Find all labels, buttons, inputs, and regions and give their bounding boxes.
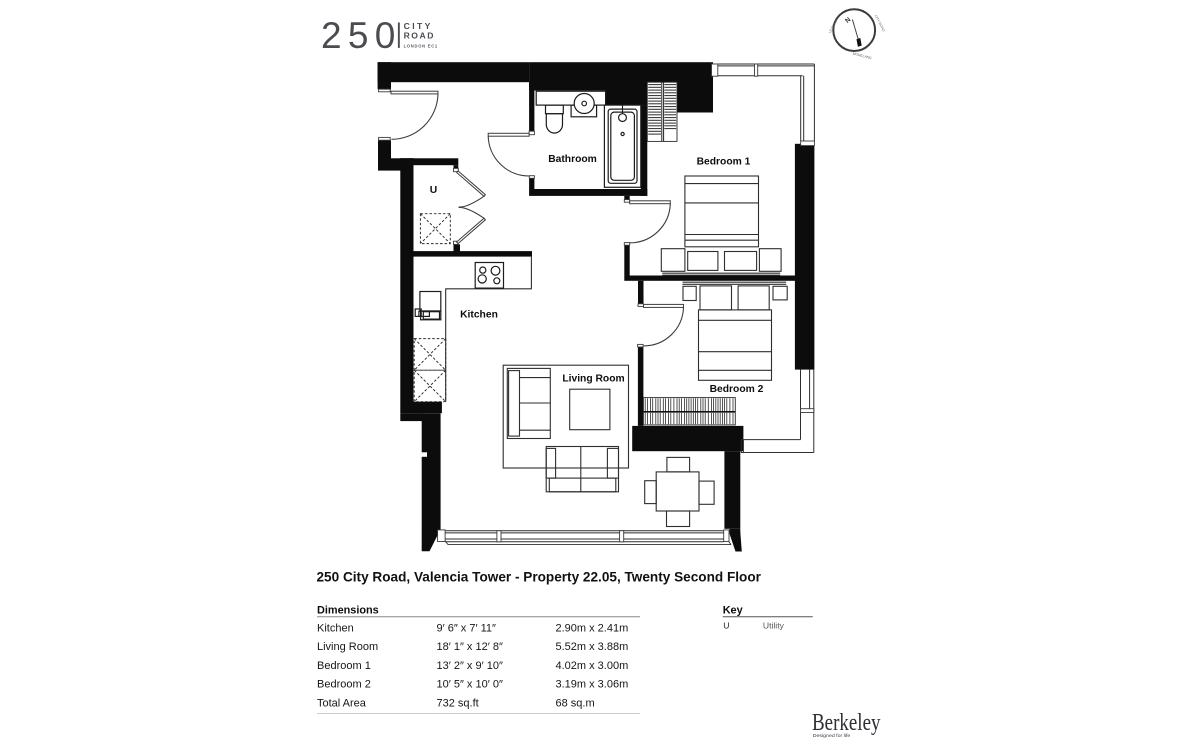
svg-text:9′ 6″ x 7′ 11″: 9′ 6″ x 7′ 11″ <box>437 623 497 635</box>
svg-text:Living Room: Living Room <box>562 374 624 385</box>
svg-text:Designed for life: Designed for life <box>813 733 851 738</box>
svg-text:CITY: CITY <box>404 21 433 31</box>
svg-text:Dimensions: Dimensions <box>317 605 379 617</box>
svg-text:Key: Key <box>723 605 743 617</box>
svg-text:Bedroom 2: Bedroom 2 <box>710 384 764 395</box>
svg-text:732 sq.ft: 732 sq.ft <box>437 697 479 709</box>
svg-text:U: U <box>430 185 437 196</box>
svg-text:Kitchen: Kitchen <box>317 623 354 635</box>
svg-text:Utility: Utility <box>763 620 785 630</box>
svg-text:Bathroom: Bathroom <box>548 154 597 165</box>
svg-text:Kitchen: Kitchen <box>460 310 498 321</box>
svg-text:68 sq.m: 68 sq.m <box>556 697 595 709</box>
svg-text:10′ 5″ x 10′ 0″: 10′ 5″ x 10′ 0″ <box>437 679 503 691</box>
svg-text:LONDON EC1: LONDON EC1 <box>404 43 438 48</box>
svg-text:ROAD: ROAD <box>404 31 435 41</box>
svg-text:U: U <box>723 620 729 630</box>
svg-text:2.90m x 2.41m: 2.90m x 2.41m <box>556 623 629 635</box>
svg-text:4.02m x 3.00m: 4.02m x 3.00m <box>556 660 629 672</box>
svg-text:18′ 1″ x 12′ 8″: 18′ 1″ x 12′ 8″ <box>437 641 503 653</box>
svg-text:250: 250 <box>321 15 402 56</box>
svg-text:Living Room: Living Room <box>317 641 378 653</box>
svg-text:Bedroom 1: Bedroom 1 <box>697 157 751 168</box>
svg-text:3.19m x 3.06m: 3.19m x 3.06m <box>556 679 629 691</box>
svg-text:Berkeley: Berkeley <box>812 709 881 736</box>
svg-text:13′ 2″ x 9′ 10″: 13′ 2″ x 9′ 10″ <box>437 660 503 672</box>
svg-text:5.52m x 3.88m: 5.52m x 3.88m <box>556 641 629 653</box>
svg-text:Bedroom 2: Bedroom 2 <box>317 679 371 691</box>
svg-text:Total Area: Total Area <box>317 697 367 709</box>
svg-text:250 City Road, Valencia Tower: 250 City Road, Valencia Tower - Property… <box>317 570 762 585</box>
svg-text:Bedroom 1: Bedroom 1 <box>317 660 371 672</box>
